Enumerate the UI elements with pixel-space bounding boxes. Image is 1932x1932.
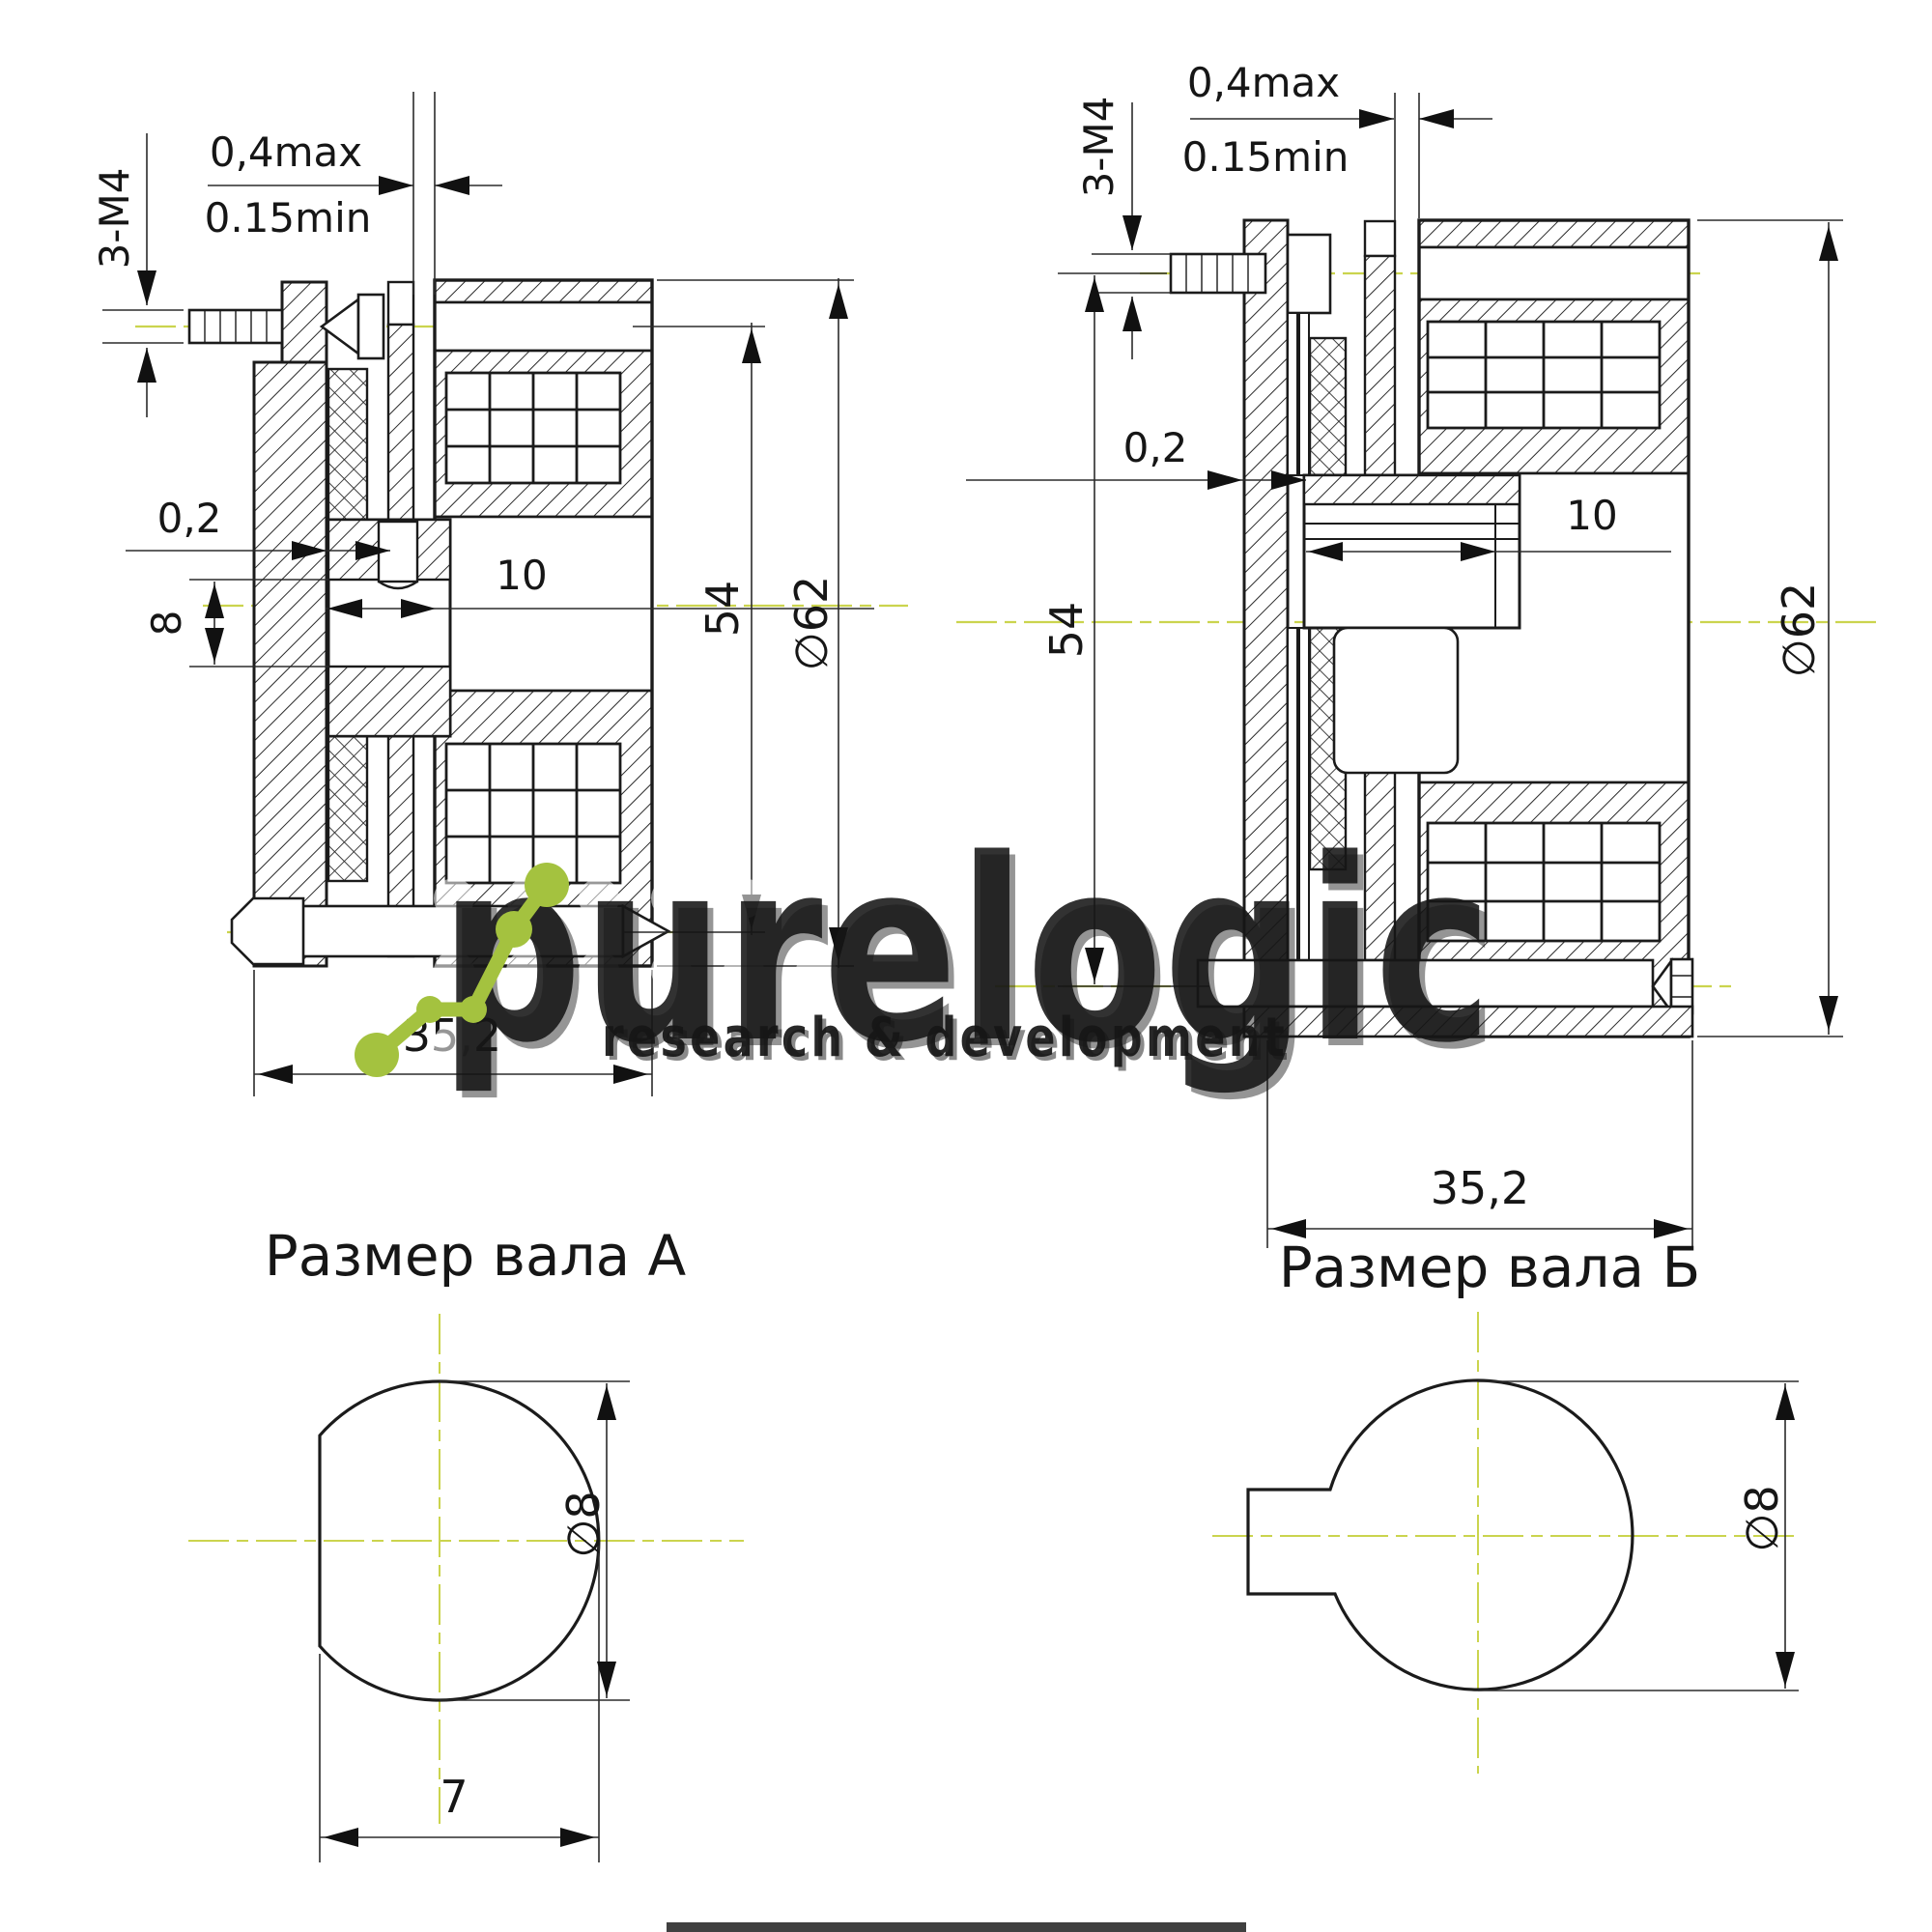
armature-plate-upper-left xyxy=(388,325,413,520)
housing-bore-strip-right xyxy=(1419,247,1689,299)
dim-width-right: 35,2 xyxy=(1431,1162,1529,1214)
dim-bore-depth-right: 10 xyxy=(1566,492,1617,539)
dim-thread-left: 3-М4 xyxy=(91,168,138,270)
dim-air-gap-max-right: 0,4max xyxy=(1187,59,1340,106)
dim-clearance-left: 0,2 xyxy=(157,495,222,542)
dim-outer-dia-left: ∅62 xyxy=(785,576,838,671)
dim-air-gap-min-left: 0.15min xyxy=(205,194,372,241)
logo-dot-3 xyxy=(460,996,487,1023)
page: 0,4max 0.15min 3-М4 0,2 8 10 54 ∅62 35,2 xyxy=(0,0,1932,1932)
shaft-view-a: Размер вала А ∅8 7 xyxy=(188,1223,744,1862)
plate-a-upper-right xyxy=(1288,313,1297,475)
dim-shaft-b-dia: ∅8 xyxy=(1736,1485,1788,1551)
hub-bottom-band-left xyxy=(328,667,450,736)
dim-air-gap-min-right: 0.15min xyxy=(1182,133,1350,181)
technical-drawing: 0,4max 0.15min 3-М4 0,2 8 10 54 ∅62 35,2 xyxy=(0,0,1932,1932)
centerline-path-shaft-a xyxy=(188,1314,744,1824)
logo-dot-1 xyxy=(355,1033,399,1077)
bolt-washer-left xyxy=(358,295,384,358)
friction-pad-upper-left xyxy=(328,369,367,520)
bolt-shank-right xyxy=(1171,254,1265,293)
dimensions-shaft-a xyxy=(320,1381,630,1862)
housing-top-band-left xyxy=(435,280,652,302)
screw-head-left xyxy=(232,898,303,964)
plate-b-upper-right xyxy=(1299,313,1309,475)
friction-pad-lower-left xyxy=(328,736,367,881)
housing-mid-left xyxy=(435,517,652,691)
dim-air-gap-max-left: 0,4max xyxy=(210,128,362,176)
scan-artifact-bottom xyxy=(667,1922,1246,1932)
screw-head-right xyxy=(1671,959,1692,1013)
hub-top-band-right xyxy=(1304,475,1520,504)
dim-bore-depth-left: 10 xyxy=(496,552,547,599)
watermark-tagline: research & development xyxy=(602,1007,1288,1069)
shaft-b-title: Размер вала Б xyxy=(1279,1235,1701,1300)
dim-shaft-dia-left: 8 xyxy=(143,611,190,637)
dim-lines-shaft-a xyxy=(320,1381,630,1862)
armature-cap-right xyxy=(1365,221,1395,256)
dim-thread-right: 3-М4 xyxy=(1075,97,1122,198)
friction-pad-upper-right xyxy=(1310,338,1346,475)
centerlines-shaft-a xyxy=(188,1314,744,1824)
bolt-washer-right xyxy=(1288,235,1330,313)
shaft-view-b: Размер вала Б ∅8 xyxy=(1212,1235,1799,1774)
housing-top-band-right xyxy=(1419,220,1689,247)
logo-dot-5 xyxy=(525,863,569,907)
logo-dot-2 xyxy=(416,996,443,1023)
flange-body-left xyxy=(254,362,327,966)
dim-shaft-a-dia: ∅8 xyxy=(557,1491,610,1557)
dim-bolt-circle-right: 54 xyxy=(1040,602,1093,659)
shaft-a-title: Размер вала А xyxy=(265,1223,687,1289)
dim-clearance-right: 0,2 xyxy=(1123,424,1188,471)
armature-plate-lower-left xyxy=(388,736,413,929)
dim-outer-dia-right: ∅62 xyxy=(1773,582,1825,678)
logo-dot-4 xyxy=(496,911,532,948)
watermark: purelogic purelogic research & developme… xyxy=(355,807,1498,1105)
dim-bolt-circle-left: 54 xyxy=(696,581,749,638)
armature-cap-upper-left xyxy=(388,282,413,325)
dim-shaft-a-flat: 7 xyxy=(440,1771,468,1823)
sleeve-block-right xyxy=(1334,628,1458,773)
housing-bore-strip-left xyxy=(435,302,652,351)
